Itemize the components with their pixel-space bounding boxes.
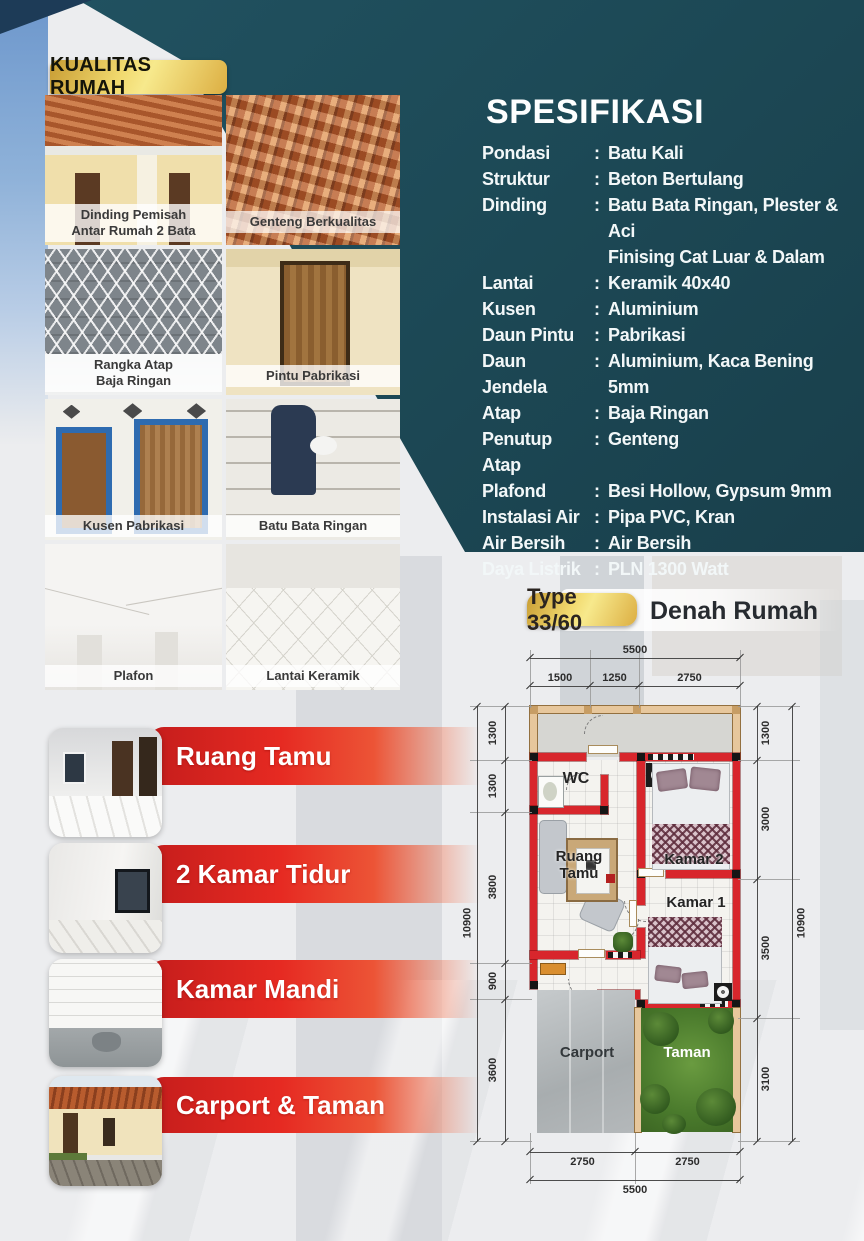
spec-value: Keramik 40x40: [608, 270, 858, 296]
spec-row: Struktur:Beton Bertulang: [482, 166, 858, 192]
photo-kusen: Kusen Pabrikasi: [45, 399, 222, 540]
photo-caption: Lantai Keramik: [226, 665, 400, 687]
shoe-bench: [540, 963, 566, 975]
caption-line: Baja Ringan: [96, 373, 171, 388]
feature-ribbon-kamar-mandi: Kamar Mandi: [148, 960, 480, 1018]
spec-colon: :: [594, 192, 608, 270]
spec-colon: :: [594, 556, 608, 582]
caption-line: Plafon: [114, 668, 154, 683]
photo-caption: Plafon: [45, 665, 222, 687]
spec-row: Lantai:Keramik 40x40: [482, 270, 858, 296]
truss-lines: [45, 249, 222, 354]
dim-text: 900: [487, 972, 499, 990]
spec-label: Daun Jendela: [482, 348, 594, 400]
feature-photo-carport-taman: [49, 1076, 162, 1186]
caption-line: Antar Rumah 2 Bata: [71, 223, 195, 238]
spec-list: Pondasi:Batu Kali Struktur:Beton Bertula…: [482, 140, 858, 582]
dim-text: 10900: [795, 908, 807, 939]
room-window: [63, 752, 86, 784]
wall-junction: [600, 806, 608, 814]
spec-value: Genteng: [608, 426, 858, 478]
spec-value: Batu Kali: [608, 140, 858, 166]
spec-value: Beton Bertulang: [608, 166, 858, 192]
dim-ext: [738, 879, 800, 880]
kualitas-rumah-badge: KUALITAS RUMAH: [50, 60, 227, 94]
spec-row: Penutup Atap:Genteng: [482, 426, 858, 478]
dim-ext: [470, 963, 532, 964]
spec-value: Baja Ringan: [608, 400, 858, 426]
plan-backyard-floor: [537, 713, 733, 757]
bed2-pillow: [689, 766, 721, 791]
brochure-page: KUALITAS RUMAH Dinding Pemisah Antar Rum…: [0, 0, 864, 1241]
dim-text: 3800: [487, 875, 499, 899]
feature-photo-kamar-tidur: [49, 843, 162, 953]
dim-line-left-outer: [477, 706, 478, 1141]
vent-ornament-3: [187, 403, 206, 419]
dim-ext: [470, 760, 532, 761]
dim-text: 1300: [760, 721, 772, 745]
spec-label: Lantai: [482, 270, 594, 296]
spec-value: PLN 1300 Watt: [608, 556, 858, 582]
dim-text: 3100: [760, 1067, 772, 1091]
worker-glove: [310, 436, 338, 456]
spec-value: Aluminium: [608, 296, 858, 322]
caption-line: Dinding Pemisah: [81, 207, 186, 222]
photo-caption: Batu Bata Ringan: [226, 515, 400, 537]
garden-bush: [643, 1012, 679, 1046]
feature-photo-kamar-mandi: [49, 959, 162, 1067]
door-leaf-entry: [588, 745, 618, 754]
house-window: [103, 1118, 114, 1147]
dim-text: 3000: [760, 807, 772, 831]
spec-row: Pondasi:Batu Kali: [482, 140, 858, 166]
garden-bush: [696, 1088, 736, 1126]
caption-line: Batu Bata Ringan: [259, 518, 367, 533]
spec-label: Kusen: [482, 296, 594, 322]
bed1-pillow: [654, 964, 682, 983]
toilet-bowl: [543, 782, 557, 801]
dim-label-right-3000: 3000: [759, 794, 773, 844]
dim-label-right-3100: 3100: [759, 1054, 773, 1104]
dim-label-1500: 1500: [530, 672, 590, 684]
dim-text: 3500: [760, 936, 772, 960]
wall-center: [637, 761, 645, 905]
room-label-kamar2: Kamar 2: [656, 851, 732, 868]
squat-toilet: [92, 1032, 121, 1051]
room-floor: [49, 920, 162, 953]
bed1-blanket: [648, 917, 722, 947]
dim-label-top-total: 5500: [530, 644, 740, 656]
spec-label: Daya Listrik: [482, 556, 594, 582]
spec-colon: :: [594, 270, 608, 296]
room-label-ruang-tamu: Ruang Tamu: [548, 848, 610, 882]
room-label-line: Ruang: [556, 848, 603, 865]
spec-value: Aluminium, Kaca Bening 5mm: [608, 348, 858, 400]
spec-value: Pabrikasi: [608, 322, 858, 348]
spec-label: Struktur: [482, 166, 594, 192]
wall-front-left: [530, 951, 578, 959]
feature-ribbon-carport-taman: Carport & Taman: [148, 1077, 480, 1133]
type-badge-label: Type 33/60: [527, 584, 637, 636]
spec-label: Air Bersih: [482, 530, 594, 556]
photo-caption: Genteng Berkualitas: [226, 211, 400, 233]
photo-genteng: Genteng Berkualitas: [226, 95, 400, 245]
spec-colon: :: [594, 400, 608, 426]
photo-caption: Rangka Atap Baja Ringan: [45, 354, 222, 392]
photo-plafon: Plafon: [45, 544, 222, 690]
feature-ribbon-ruang-tamu: Ruang Tamu: [148, 727, 480, 785]
spec-colon: :: [594, 478, 608, 504]
dim-ext: [738, 760, 800, 761]
kualitas-rumah-label: KUALITAS RUMAH: [50, 54, 227, 100]
dim-label-right-total: 10900: [794, 898, 808, 948]
room-label-taman: Taman: [655, 1044, 719, 1061]
dim-label-left-3600: 3600: [486, 1045, 500, 1095]
dim-text: 3600: [487, 1058, 499, 1082]
sky-strip: [49, 1076, 162, 1087]
wall-bed2-bottom: [666, 870, 740, 878]
bed1-pillow: [681, 971, 709, 990]
backyard-wall-left: [530, 706, 537, 760]
spec-label: Atap: [482, 400, 594, 426]
dim-label-left-900: 900: [486, 956, 500, 1006]
spec-label: Daun Pintu: [482, 322, 594, 348]
spec-label: Instalasi Air: [482, 504, 594, 530]
window-back: [648, 754, 694, 760]
dim-label-1250: 1250: [590, 672, 639, 684]
photo-batu-bata: Batu Bata Ringan: [226, 399, 400, 540]
fascia-strip: [45, 146, 222, 155]
worker-figure: [271, 405, 316, 495]
house-door: [63, 1113, 79, 1155]
bg-right-strip: [820, 600, 864, 1030]
photo-pintu: Pintu Pabrikasi: [226, 249, 400, 395]
backyard-wall-right: [733, 706, 740, 760]
feature-label: Ruang Tamu: [176, 741, 332, 772]
spec-colon: :: [594, 530, 608, 556]
spec-row: Daya Listrik:PLN 1300 Watt: [482, 556, 858, 582]
spec-label: Plafond: [482, 478, 594, 504]
dim-label-2750-br: 2750: [635, 1156, 740, 1168]
spec-row: Atap:Baja Ringan: [482, 400, 858, 426]
dim-ext: [470, 812, 532, 813]
wall-junction: [732, 1000, 740, 1008]
wall-junction: [637, 1000, 645, 1008]
spec-row: Daun Pintu:Pabrikasi: [482, 322, 858, 348]
spec-label: Dinding: [482, 192, 594, 270]
spec-value-line: Batu Bata Ringan, Plester & Aci: [608, 192, 858, 244]
dim-label-bottom-total: 5500: [530, 1184, 740, 1196]
type-badge: Type 33/60: [527, 593, 637, 626]
spec-colon: :: [594, 348, 608, 400]
dim-label-left-1300a: 1300: [486, 708, 500, 758]
vent-ornament: [63, 405, 81, 419]
bed1-side-roll: [717, 986, 729, 998]
spec-colon: :: [594, 504, 608, 530]
dim-line-bottom-total: [530, 1180, 740, 1181]
dim-line-right-outer: [792, 706, 793, 1141]
room-window: [115, 869, 150, 912]
bed2-pillow: [656, 768, 688, 792]
spec-row: Kusen:Aluminium: [482, 296, 858, 322]
wall-junction: [637, 753, 645, 761]
ceiling-corner-line: [45, 584, 149, 615]
dim-label-right-1300: 1300: [759, 708, 773, 758]
wall-column: [732, 706, 740, 714]
spec-colon: :: [594, 140, 608, 166]
spec-label: Penutup Atap: [482, 426, 594, 478]
spec-label: Pondasi: [482, 140, 594, 166]
spec-value: Pipa PVC, Kran: [608, 504, 858, 530]
dim-text: 1300: [487, 774, 499, 798]
spec-colon: :: [594, 322, 608, 348]
denah-title: Denah Rumah: [650, 597, 818, 626]
wall-back: [530, 753, 586, 761]
wall-right: [733, 761, 740, 1008]
spec-value: Besi Hollow, Gypsum 9mm: [608, 478, 858, 504]
dim-label-right-3500: 3500: [759, 923, 773, 973]
caption-line: Lantai Keramik: [266, 668, 359, 683]
spec-value: Air Bersih: [608, 530, 858, 556]
spec-value-line: Finising Cat Luar & Dalam: [608, 244, 858, 270]
door-leaf-front: [578, 949, 605, 958]
roof-band: [49, 1087, 162, 1109]
spec-row: Air Bersih:Air Bersih: [482, 530, 858, 556]
feature-label: Kamar Mandi: [176, 974, 339, 1005]
dim-text: 1300: [487, 721, 499, 745]
room-label-wc: WC: [556, 770, 596, 788]
photo-dinding-pemisah: Dinding Pemisah Antar Rumah 2 Bata: [45, 95, 222, 245]
dim-text: 10900: [461, 908, 473, 939]
dim-label-2750-top: 2750: [639, 672, 740, 684]
wall-column: [530, 706, 538, 714]
wall-junction: [530, 981, 538, 989]
dim-ext: [740, 650, 741, 708]
sky-photo-strip: [0, 0, 48, 446]
feature-ribbon-kamar-tidur: 2 Kamar Tidur: [148, 845, 480, 903]
roof-texture: [45, 95, 222, 146]
spec-row: Daun Jendela:Aluminium, Kaca Bening 5mm: [482, 348, 858, 400]
feature-label: 2 Kamar Tidur: [176, 859, 350, 890]
caption-line: Kusen Pabrikasi: [83, 518, 184, 533]
photo-lantai-keramik: Lantai Keramik: [226, 544, 400, 690]
dim-label-left-total: 10900: [460, 898, 474, 948]
window-front: [608, 952, 632, 958]
garden-bush: [640, 1084, 670, 1114]
room-label-kamar1: Kamar 1: [658, 894, 734, 911]
caption-line: Rangka Atap: [94, 357, 173, 372]
spec-value: Batu Bata Ringan, Plester & AciFinising …: [608, 192, 858, 270]
dim-ext: [470, 999, 532, 1000]
wall-strip: [226, 544, 400, 588]
spec-colon: :: [594, 296, 608, 322]
plant-pot: [613, 932, 633, 952]
room-label-carport: Carport: [545, 1044, 629, 1061]
dim-label-left-3800: 3800: [486, 862, 500, 912]
room-label-line: Tamu: [560, 865, 599, 882]
dim-line-top-total: [530, 658, 740, 659]
spec-row: Dinding:Batu Bata Ringan, Plester & AciF…: [482, 192, 858, 270]
tile-wall: [49, 959, 162, 1028]
ceiling-corner-line-2: [125, 583, 222, 605]
carport-seam: [602, 990, 604, 1133]
dim-line-left-inner: [505, 706, 506, 1141]
spec-row: Instalasi Air:Pipa PVC, Kran: [482, 504, 858, 530]
paving: [49, 1160, 162, 1186]
dim-label-left-1300b: 1300: [486, 761, 500, 811]
spec-title: SPESIFIKASI: [486, 93, 704, 132]
feature-label: Carport & Taman: [176, 1090, 385, 1121]
caption-line: Pintu Pabrikasi: [266, 368, 360, 383]
dim-ext: [470, 1141, 532, 1142]
photo-caption: Kusen Pabrikasi: [45, 515, 222, 537]
vent-ornament-2: [123, 403, 142, 419]
spec-colon: :: [594, 166, 608, 192]
spec-colon: :: [594, 426, 608, 478]
carport-area: [537, 990, 635, 1133]
dim-ext: [470, 706, 532, 707]
photo-caption: Pintu Pabrikasi: [226, 365, 400, 387]
spec-row: Plafond:Besi Hollow, Gypsum 9mm: [482, 478, 858, 504]
garden-bush: [708, 1008, 734, 1034]
wall-junction: [732, 870, 740, 878]
room-floor: [49, 796, 162, 837]
dim-line-right-inner: [757, 706, 758, 1141]
garden-bush: [662, 1114, 686, 1134]
dim-label-2750-bl: 2750: [530, 1156, 635, 1168]
dim-ext: [738, 1018, 800, 1019]
caption-line: Genteng Berkualitas: [250, 214, 376, 229]
photo-caption: Dinding Pemisah Antar Rumah 2 Bata: [45, 204, 222, 242]
photo-rangka-atap: Rangka Atap Baja Ringan: [45, 249, 222, 395]
carport-seam: [569, 990, 571, 1133]
feature-photo-ruang-tamu: [49, 728, 162, 837]
